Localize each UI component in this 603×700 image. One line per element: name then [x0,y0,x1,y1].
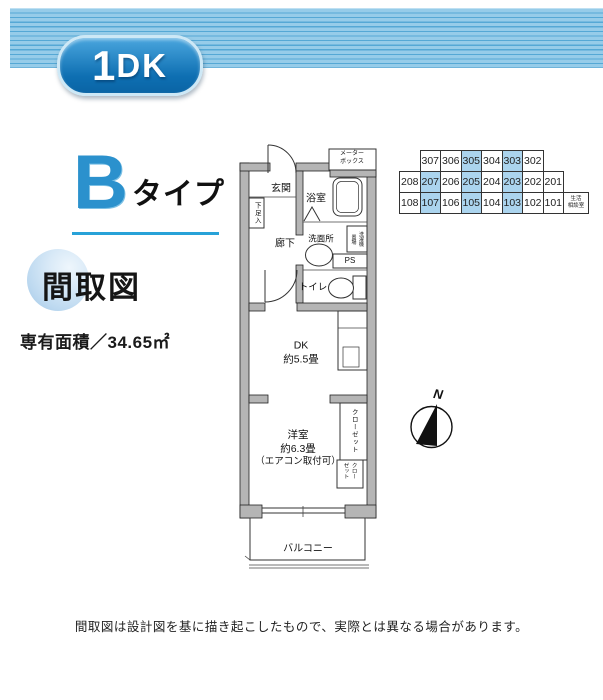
room-grid-cell: 202 [522,171,544,193]
label-shoe-box: 下足入 [252,202,260,225]
room-grid-note-cell: 生活 相談室 [563,192,589,214]
floor-plan: 玄関 下足入 浴室 廊下 洗面所 洗濯機 置場 PS トイレ メーター ボックス… [225,135,475,580]
room-grid-cell: 201 [543,171,565,193]
room-grid-cell: 302 [522,150,544,172]
label-toilet: トイレ [299,282,328,294]
label-bedroom-line3: （エアコン取付可） [255,456,341,468]
label-balcony: バルコニー [283,543,333,556]
label-washroom: 洗面所 [308,233,334,244]
type-letter: B [73,148,128,218]
floorplan-title: 間取図 [42,262,141,307]
label-laundry-space: 洗濯機 置場 [350,232,364,247]
unit-type-badge: 1 DK [57,35,203,96]
label-pipe-space: PS [345,256,356,266]
label-corridor: 廊下 [275,238,295,251]
label-bedroom-line1: 洋室 [255,429,341,443]
type-heading: B タイプ [73,148,225,218]
room-grid-cell: 101 [543,192,565,214]
unit-type-letters: DK [116,47,168,85]
toilet-bowl [329,278,354,298]
disclaimer-text: 間取図は設計図を基に描き起こしたもので、実際とは異なる場合があります。 [0,616,603,635]
label-meter-box: メーター ボックス [340,151,364,167]
room-grid-cell: 102 [522,192,544,214]
room-grid-cell: 303 [502,150,524,172]
label-dk-line1: DK [283,339,319,353]
label-meter-line2: ボックス [340,159,364,167]
type-underline [72,232,219,235]
label-dk: DK 約5.5畳 [283,339,319,366]
floor-plan-drawing [225,135,475,580]
label-meter-line1: メーター [340,151,364,159]
room-grid-cell: 304 [481,150,503,172]
room-grid-cell: 204 [481,171,503,193]
room-grid-cell: 104 [481,192,503,214]
label-bathroom: 浴室 [306,193,326,206]
room-grid-cell: 203 [502,171,524,193]
label-dk-line2: 約5.5畳 [283,353,319,367]
label-closet-small-line1: クロー [350,463,357,480]
label-closet-small: クロー ゼット [341,463,356,480]
label-bedroom: 洋室 約6.3畳 （エアコン取付可） [255,429,341,469]
label-closet-tall: クローゼット [349,409,357,454]
label-laundry-line2: 置場 [350,232,357,247]
washroom-sink [306,244,333,266]
exclusive-area-text: 専有面積／34.65㎡ [20,328,170,353]
toilet-tank [353,276,366,299]
kitchen-counter [338,311,367,370]
room-grid-cell: 103 [502,192,524,214]
label-bedroom-line2: 約6.3畳 [255,443,341,457]
label-laundry-line1: 洗濯機 [358,232,365,247]
unit-type-number: 1 [92,42,116,90]
label-entrance: 玄関 [271,183,291,196]
label-closet-small-line2: ゼット [341,463,348,480]
type-suffix: タイプ [132,169,225,213]
bathroom-folding-door [304,207,320,221]
